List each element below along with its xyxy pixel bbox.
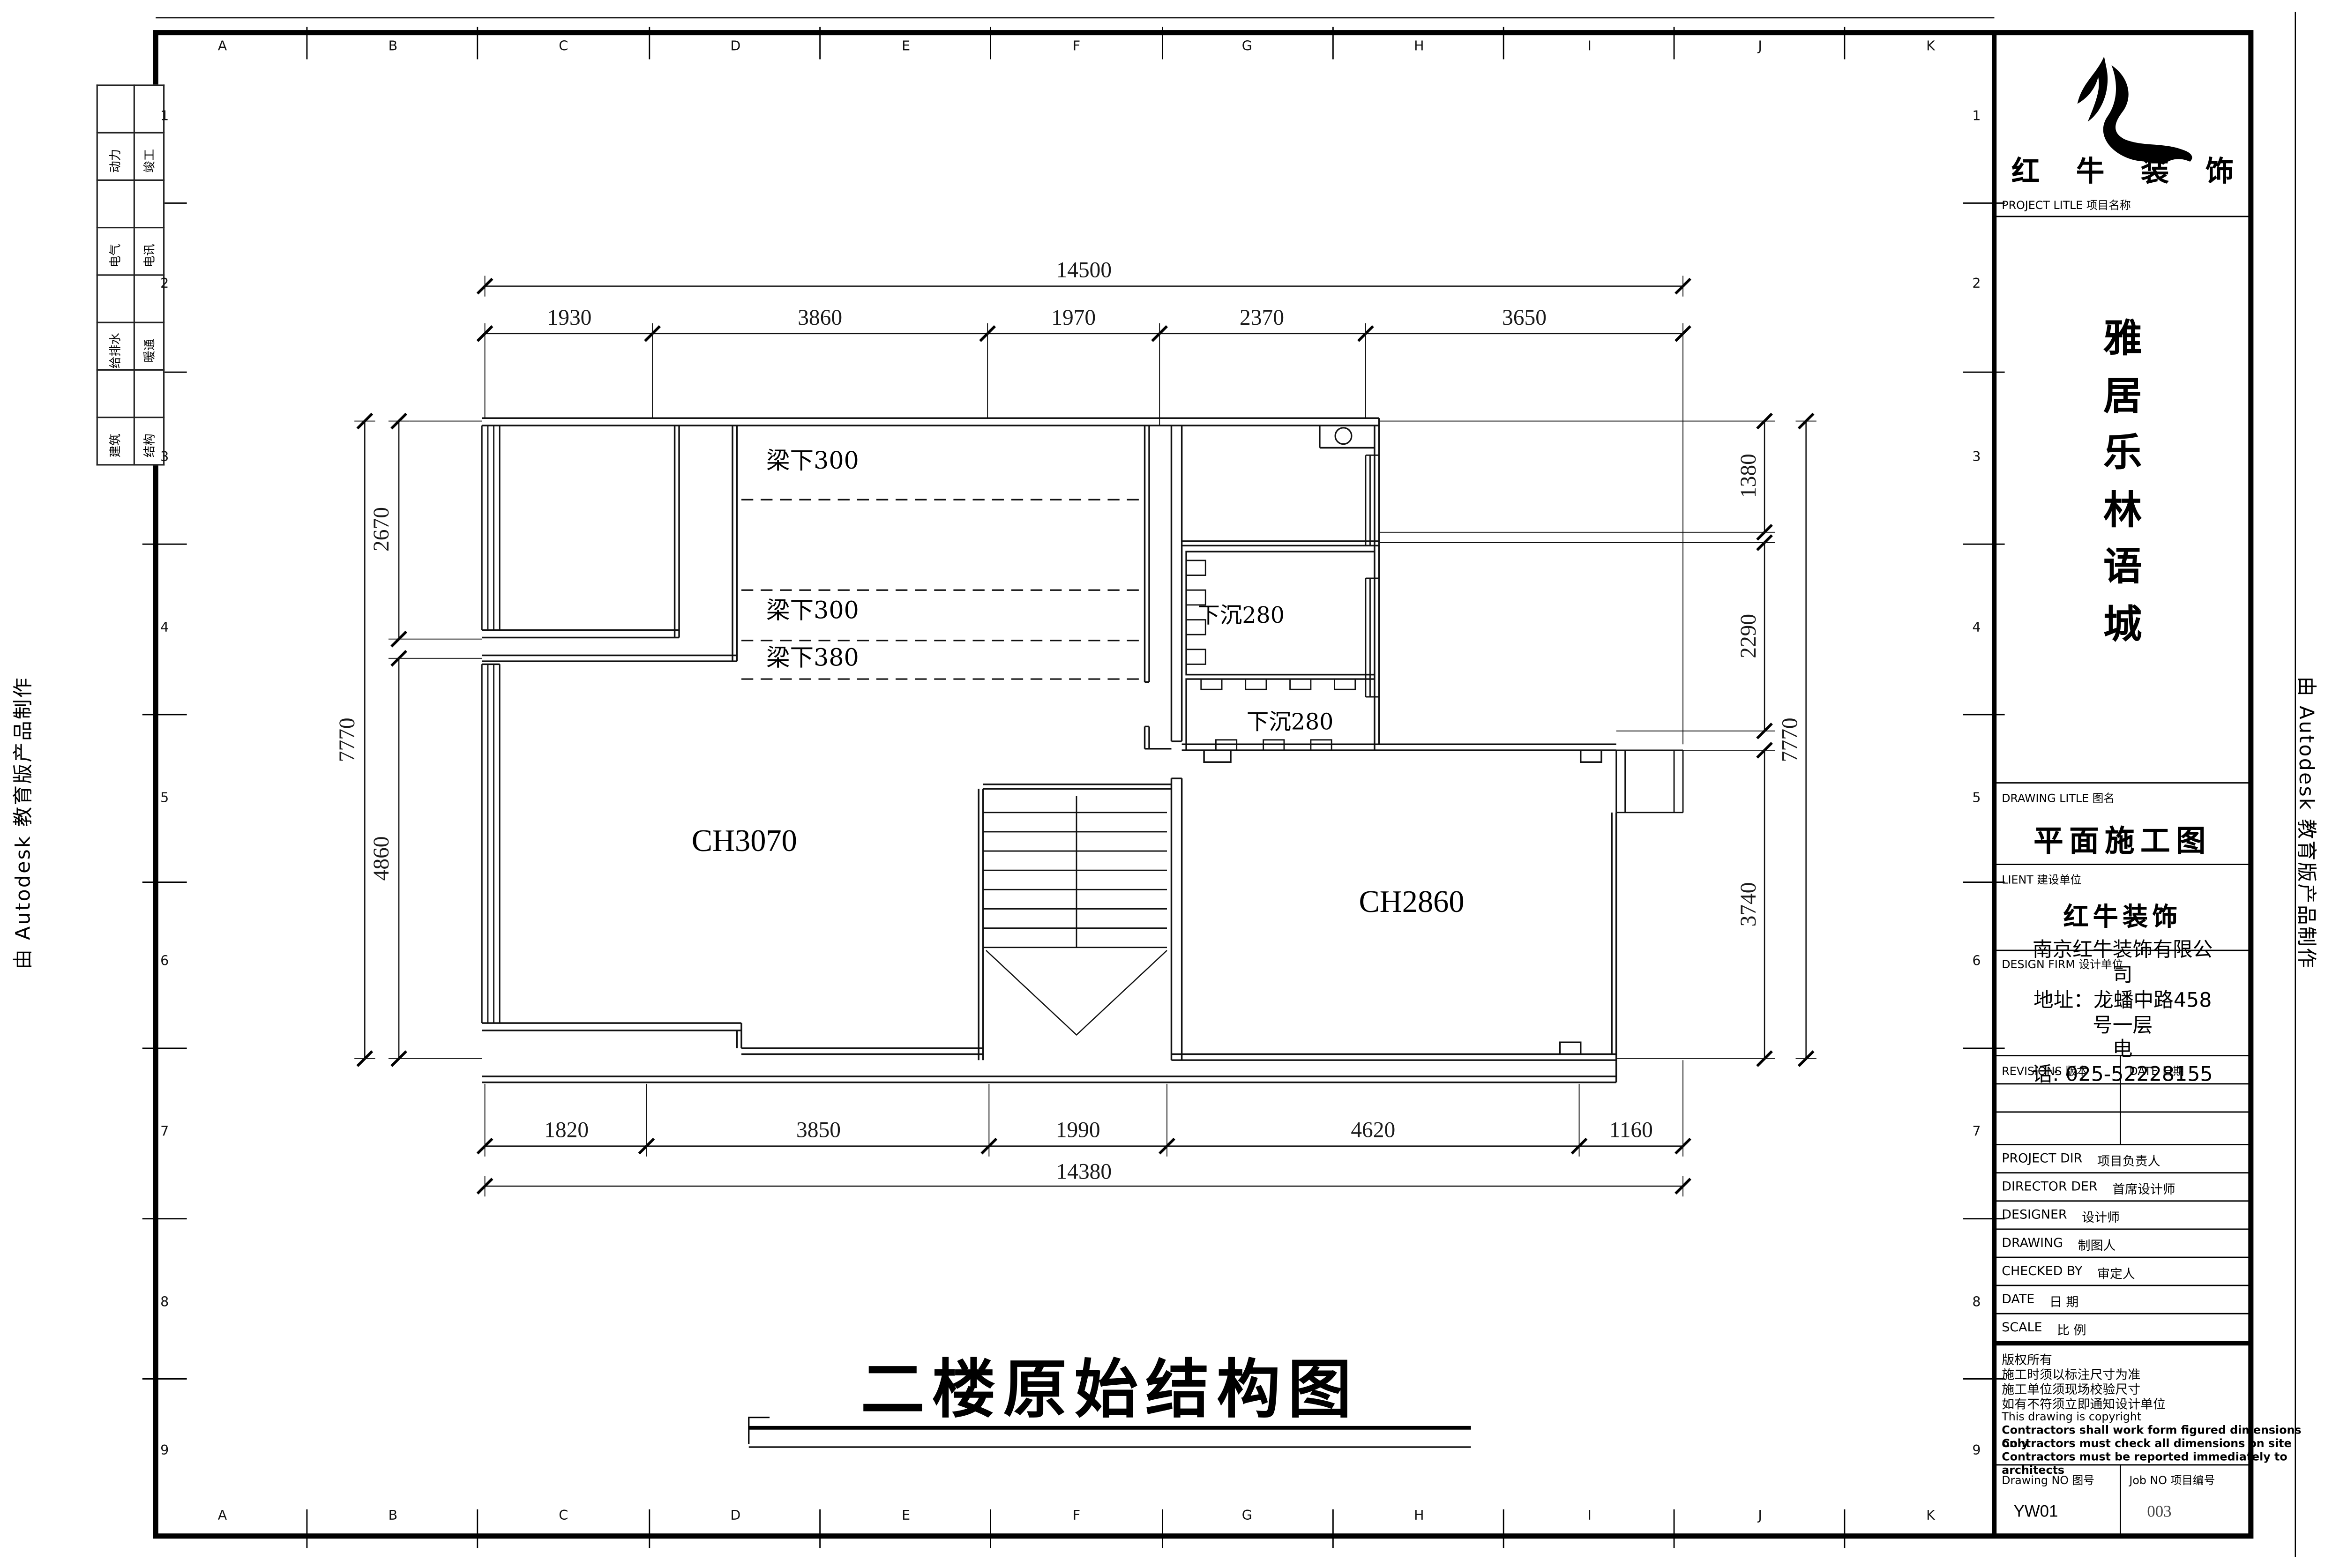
- grid-row-label: 9: [1966, 1444, 1987, 1459]
- grid-col-label: F: [1066, 1509, 1087, 1524]
- dim-bottom-seg4: 4620: [1351, 1118, 1395, 1142]
- grid-col-label: C: [553, 1509, 574, 1524]
- dim-right-bottom: 3740: [1736, 882, 1761, 927]
- room-label-ch3070: CH3070: [692, 824, 797, 858]
- dim-bottom-seg2: 3850: [796, 1118, 841, 1142]
- grid-col-label: G: [1237, 1509, 1257, 1524]
- drawing-main-title: 二楼原始结构图: [749, 1339, 1471, 1431]
- date-col-label: DATE 日期: [2129, 1063, 2184, 1080]
- staff-row-director: DIRECTOR DER首席设计师: [2002, 1180, 2246, 1198]
- dim-right-mid: 2290: [1736, 614, 1761, 658]
- grid-row-label: 8: [1966, 1296, 1987, 1311]
- grid-col-label: C: [553, 40, 574, 55]
- dim-left-upper: 2670: [369, 507, 394, 552]
- grid-col-label: E: [896, 1509, 916, 1524]
- dim-right-top: 1380: [1736, 454, 1761, 498]
- grid-row-label: 1: [154, 110, 175, 125]
- company-logo-text: 红 牛 装 饰: [1994, 150, 2250, 190]
- dimension-ticks: [358, 279, 1814, 1194]
- grid-col-label: F: [1066, 40, 1087, 55]
- dim-bottom-seg5: 1160: [1609, 1118, 1653, 1142]
- staff-row-date: DATE日 期: [2002, 1293, 2246, 1311]
- drawing-sheet: 14500 1930 3860 1970 2370 3650 1820 3850…: [0, 0, 2325, 1568]
- grid-row-label: 9: [154, 1444, 175, 1459]
- staff-row-designer: DESIGNER设计师: [2002, 1209, 2246, 1226]
- grid-row-label: 8: [154, 1296, 175, 1311]
- grid-col-label: A: [212, 1509, 232, 1524]
- window-lines: [482, 426, 1683, 1023]
- discipline-tab-table: 动力 竣工 电气 电讯 给排水 暖通 建筑 结构: [97, 84, 165, 465]
- copyright-note: This drawing is copyright: [2002, 1410, 2141, 1423]
- tab-hvac: 暖通: [134, 322, 164, 370]
- staircase: [983, 796, 1167, 1035]
- grid-col-label: E: [896, 40, 916, 55]
- sunken-note-2: 下沉280: [1247, 709, 1333, 735]
- grid-row-label: 1: [1966, 110, 1987, 125]
- grid-col-label: I: [1579, 1509, 1600, 1524]
- grid-row-label: 3: [1966, 451, 1987, 466]
- grid-row-label: 2: [1966, 277, 1987, 292]
- grid-row-label: 2: [154, 277, 175, 292]
- walls: [482, 418, 1616, 1082]
- dim-bottom-seg1: 1820: [544, 1118, 589, 1142]
- drawing-no-value: YW01: [2014, 1503, 2058, 1521]
- dim-top-seg2: 3860: [798, 306, 842, 330]
- grid-col-label: D: [725, 40, 746, 55]
- beam-note-2: 梁下300: [766, 596, 859, 624]
- grid-ticks: [142, 27, 2005, 1548]
- grid-row-label: 6: [154, 955, 175, 970]
- dim-top-seg3: 1970: [1051, 306, 1096, 330]
- beam-note-3: 梁下380: [766, 644, 859, 672]
- tab-plumbing: 给排水: [97, 322, 134, 370]
- grid-col-label: B: [382, 40, 403, 55]
- room-label-ch2860: CH2860: [1359, 885, 1464, 919]
- grid-col-label: K: [1920, 40, 1941, 55]
- grid-row-label: 7: [1966, 1125, 1987, 1140]
- grid-row-label: 5: [1966, 792, 1987, 807]
- sheet-frame: [156, 12, 2295, 1557]
- grid-col-label: I: [1579, 40, 1600, 55]
- grid-col-label: K: [1920, 1509, 1941, 1524]
- sunken-note-1: 下沉280: [1197, 603, 1284, 628]
- redbull-logo-icon: [2078, 56, 2192, 164]
- staff-row-scale: SCALE比 例: [2002, 1321, 2246, 1339]
- drawing-title-label: DRAWING LITLE 图名: [2002, 790, 2115, 806]
- grid-col-label: J: [1749, 40, 1770, 55]
- grid-col-label: J: [1749, 1509, 1770, 1524]
- beam-note-1: 梁下300: [766, 447, 859, 474]
- tab-telecom: 电讯: [134, 228, 164, 275]
- dim-top-seg1: 1930: [547, 306, 592, 330]
- client-label: LIENT 建设单位: [2002, 872, 2081, 888]
- sheet-stage: 14500 1930 3860 1970 2370 3650 1820 3850…: [0, 0, 2325, 1568]
- autodesk-stamp-right: 由 Autodesk 教育版产品制作: [2294, 600, 2324, 1045]
- dim-left-outer: 7770: [335, 717, 359, 762]
- grid-col-label: H: [1409, 40, 1429, 55]
- dim-right-outer: 7770: [1778, 717, 1802, 762]
- grid-col-label: B: [382, 1509, 403, 1524]
- dim-top-seg4: 2370: [1240, 306, 1284, 330]
- autodesk-stamp-left: 由 Autodesk 教育版产品制作: [6, 600, 36, 1045]
- plan-labels: 梁下300 梁下300 梁下380 下沉280 下沉280 CH3070 CH2…: [692, 447, 1465, 919]
- dim-left-lower: 4860: [369, 836, 394, 881]
- grid-row-label: 6: [1966, 955, 1987, 970]
- grid-col-label: D: [725, 1509, 746, 1524]
- drawing-no-label: Drawing NO 图号: [2002, 1472, 2094, 1489]
- grid-col-label: H: [1409, 1509, 1429, 1524]
- dimension-text: 14500 1930 3860 1970 2370 3650 1820 3850…: [335, 258, 1802, 1184]
- column-circle: [1335, 428, 1352, 444]
- copyright-note: Contractors must check all dimensions on…: [2002, 1437, 2291, 1450]
- drawing-title: 平面施工图: [1994, 817, 2250, 860]
- grid-row-label: 4: [1966, 621, 1987, 636]
- staff-row-project-dir: PROJECT DIR项目负责人: [2002, 1152, 2246, 1170]
- tab-electrical: 电气: [97, 228, 134, 275]
- revisions-label: REVISIONS 版本: [2002, 1063, 2087, 1080]
- client-name: 红牛装饰: [1994, 896, 2250, 933]
- staff-row-drawing: DRAWING制图人: [2002, 1237, 2246, 1254]
- job-no-label: Job NO 项目编号: [2129, 1472, 2215, 1489]
- witness-lines: [354, 276, 1817, 1196]
- dim-bottom-seg3: 1990: [1056, 1118, 1100, 1142]
- grid-col-label: A: [212, 40, 232, 55]
- grid-row-label: 7: [154, 1125, 175, 1140]
- dim-top-total: 14500: [1056, 258, 1112, 283]
- tab-architecture: 建筑: [97, 418, 134, 465]
- tab-power: 动力: [97, 133, 134, 180]
- floor-plan-canvas: 14500 1930 3860 1970 2370 3650 1820 3850…: [0, 0, 2325, 1568]
- grid-col-label: G: [1237, 40, 1257, 55]
- project-title-label: PROJECT LITLE 项目名称: [2002, 197, 2131, 214]
- grid-row-label: 4: [154, 621, 175, 636]
- staff-row-checked-by: CHECKED BY审定人: [2002, 1265, 2246, 1283]
- project-name: 雅 居 乐 林 语 城: [1994, 308, 2250, 650]
- dim-bottom-total: 14380: [1056, 1159, 1112, 1184]
- dim-top-seg5: 3650: [1502, 306, 1547, 330]
- job-no-value: 003: [2147, 1503, 2171, 1521]
- tab-asbuilt: 竣工: [134, 133, 164, 180]
- grid-row-label: 5: [154, 792, 175, 807]
- grid-row-label: 3: [154, 451, 175, 466]
